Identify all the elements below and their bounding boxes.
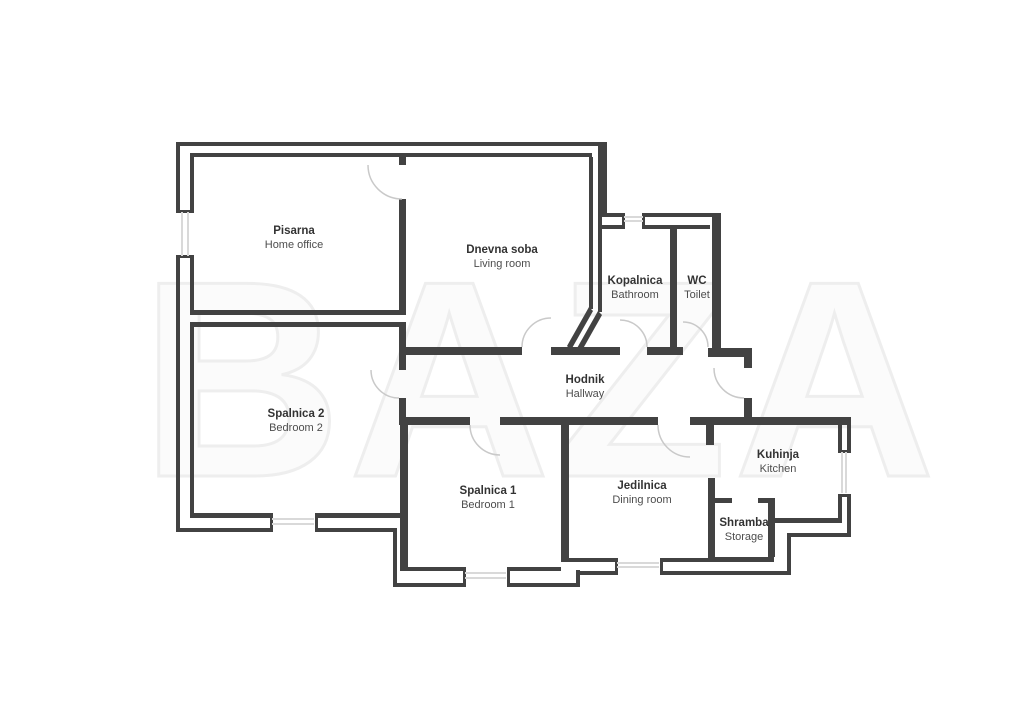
- window-cap: [838, 494, 851, 497]
- door-arc-jedilnica: [658, 425, 690, 457]
- wall: [408, 567, 463, 571]
- wall: [598, 142, 607, 217]
- wall: [393, 528, 397, 587]
- window-pisarna: [187, 212, 189, 256]
- wall: [744, 357, 752, 368]
- floor-plan-canvas: BAZA: [0, 0, 1030, 727]
- window-pisarna: [181, 212, 183, 256]
- wall: [190, 153, 592, 157]
- wall: [403, 417, 470, 425]
- window-cap: [270, 513, 273, 532]
- window-spalnica1: [465, 577, 506, 579]
- wall: [838, 497, 842, 523]
- wall: [510, 567, 561, 571]
- wall: [565, 558, 615, 562]
- window-cap: [838, 450, 851, 453]
- wall: [589, 157, 593, 309]
- window-cap: [176, 210, 194, 213]
- window-cap: [660, 558, 663, 575]
- wall: [176, 528, 270, 532]
- door-arc-wc: [683, 322, 708, 347]
- wall: [670, 225, 677, 355]
- wall: [190, 322, 406, 327]
- door-arc-pisarna: [368, 165, 402, 199]
- window-kuhinja: [845, 452, 847, 493]
- wall: [663, 571, 791, 575]
- window-spalnica2: [272, 518, 314, 520]
- wall: [190, 310, 406, 315]
- wall: [708, 557, 774, 562]
- wall: [578, 347, 620, 355]
- wall: [773, 518, 842, 523]
- door-arc-spalnica1: [470, 425, 500, 455]
- wall: [510, 583, 580, 587]
- wall: [645, 225, 710, 229]
- wall: [399, 155, 406, 165]
- wall: [744, 398, 752, 417]
- wall: [176, 142, 607, 146]
- window-spalnica2: [272, 523, 314, 525]
- wall: [176, 146, 180, 210]
- wall: [645, 213, 721, 217]
- wall: [598, 213, 622, 217]
- wall: [847, 497, 851, 537]
- wall: [399, 199, 406, 310]
- wall: [318, 513, 403, 518]
- doors-layer: [368, 165, 744, 457]
- wall: [400, 425, 408, 571]
- wall: [690, 417, 851, 425]
- wall: [190, 327, 194, 513]
- wall: [190, 157, 194, 210]
- wall: [768, 498, 775, 557]
- walls-layer: [176, 142, 851, 587]
- wall: [598, 217, 602, 312]
- wall: [787, 533, 791, 575]
- wall: [561, 425, 569, 562]
- wall: [190, 513, 270, 518]
- wall: [647, 347, 683, 355]
- wall: [708, 348, 752, 357]
- window-cap: [315, 513, 318, 532]
- wall: [403, 347, 522, 355]
- floor-plan-drawing: [0, 0, 1030, 727]
- window-kopalnica: [624, 216, 643, 218]
- window-cap: [507, 567, 510, 587]
- windows-layer: [181, 212, 847, 579]
- wall: [551, 347, 578, 355]
- wall: [708, 498, 715, 562]
- wall: [787, 533, 851, 537]
- window-jedilnica: [617, 566, 659, 568]
- door-arc-entrance: [714, 368, 744, 398]
- wall: [393, 583, 463, 587]
- wall: [190, 258, 194, 310]
- wall: [708, 478, 715, 498]
- wall: [838, 425, 842, 450]
- wall: [601, 225, 622, 229]
- wall: [663, 558, 712, 562]
- wall: [318, 528, 397, 532]
- wall: [176, 258, 180, 532]
- wall: [715, 498, 732, 503]
- door-arc-kopalnica: [620, 320, 647, 347]
- wall: [706, 425, 714, 445]
- door-arc-dnevna: [522, 318, 551, 347]
- wall: [500, 417, 658, 425]
- wall: [847, 417, 851, 450]
- window-kopalnica: [624, 220, 643, 222]
- wall: [576, 571, 615, 575]
- window-jedilnica: [617, 562, 659, 564]
- window-spalnica1: [465, 572, 506, 574]
- window-cap: [176, 255, 194, 258]
- window-kuhinja: [841, 452, 843, 493]
- wall: [399, 327, 406, 370]
- wall: [712, 213, 721, 357]
- door-arc-spalnica2: [371, 370, 399, 398]
